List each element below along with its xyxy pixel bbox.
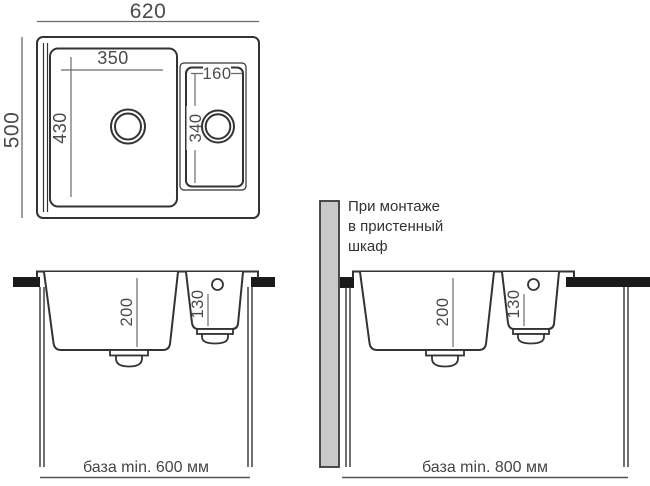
front-view-left: 200 130 база min. 600 мм [13,272,275,478]
dim-main-width: 350 [97,48,129,68]
front-view-right: При монтаже в пристенный шкаф 200 130 ба… [320,198,650,478]
dim-overall-width: 620 [130,0,167,23]
small-drain-icon [202,111,234,143]
sink-profile-right [353,272,574,367]
diagram-canvas: 620 500 350 430 160 340 [0,0,650,486]
dim-small-depth: 130 [189,289,207,318]
dim-main-depth: 200 [118,297,136,326]
dim-small-width: 160 [202,65,231,83]
dim-main-length: 430 [50,112,70,144]
wall-note-line-2: в пристенный [348,218,443,235]
dim-main-depth: 200 [434,297,452,326]
base-caption-right: база min. 800 мм [422,459,548,476]
top-view: 620 500 350 430 160 340 [1,0,260,218]
countertop-left [340,277,354,288]
sink-profile-left [37,272,258,367]
countertop-right [251,277,275,287]
wall-panel [320,201,339,467]
dim-small-depth: 130 [505,289,523,318]
main-drain-icon [111,110,145,144]
sink-dimension-diagram: 620 500 350 430 160 340 [0,0,650,486]
wall-note-line-3: шкаф [348,238,388,255]
wall-note-line-1: При монтаже [348,198,440,215]
countertop-right [566,277,650,287]
countertop-left [13,277,40,287]
dim-overall-depth: 500 [1,112,24,149]
base-caption-left: база min. 600 мм [83,459,209,476]
